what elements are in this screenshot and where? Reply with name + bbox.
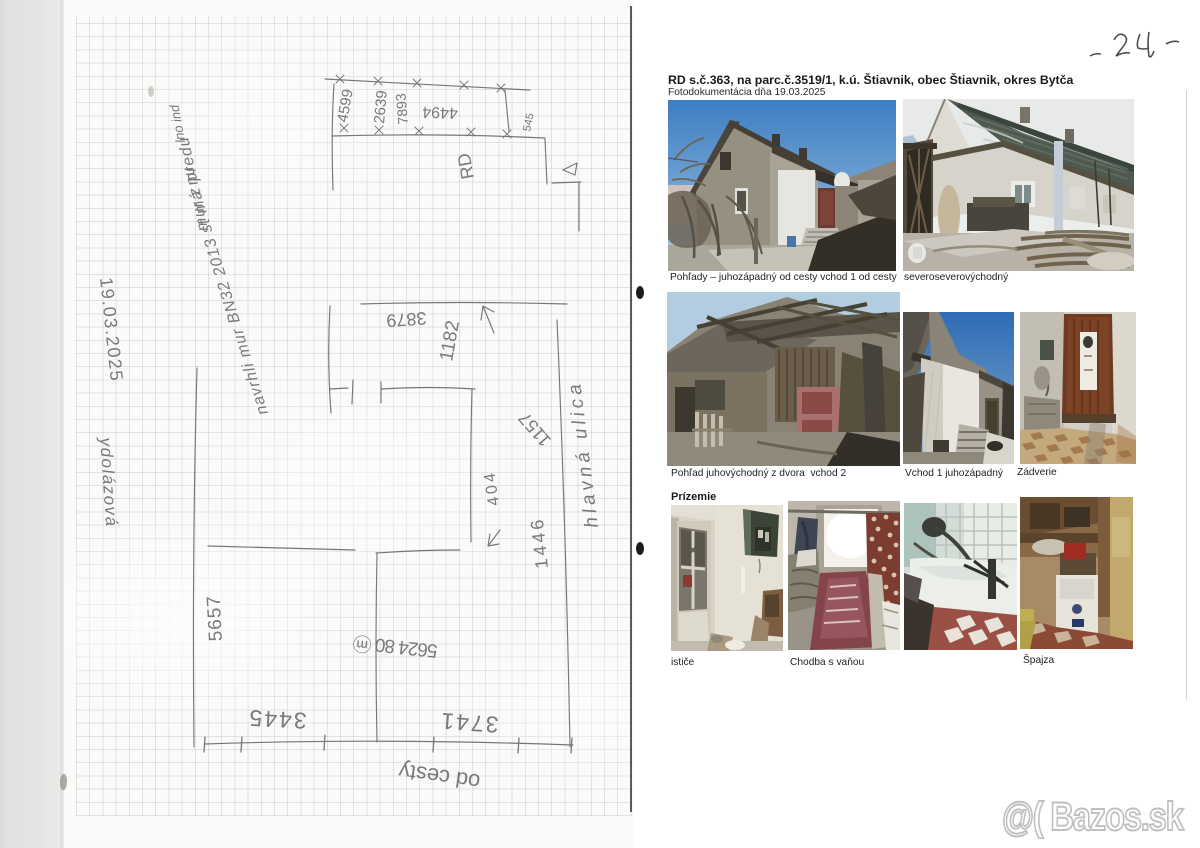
svg-text:4599: 4599 — [334, 88, 357, 124]
svg-text:404: 404 — [481, 469, 503, 507]
svg-text:RD: RD — [454, 152, 478, 181]
svg-text:lno ind: lno ind — [166, 103, 188, 144]
svg-text:3879: 3879 — [386, 308, 427, 331]
svg-text:19.03.2025: 19.03.2025 — [96, 276, 127, 383]
svg-text:1446: 1446 — [527, 516, 552, 570]
svg-text:ydolázová: ydolázová — [96, 436, 121, 528]
svg-text:3445: 3445 — [247, 705, 307, 734]
svg-text:hlavná ulica: hlavná ulica — [564, 379, 603, 529]
svg-text:5624 80 ⓜ: 5624 80 ⓜ — [352, 631, 439, 662]
svg-text:545: 545 — [521, 112, 537, 132]
svg-text:5657: 5657 — [204, 595, 227, 642]
svg-text:od cesty: od cesty — [397, 759, 482, 795]
svg-text:1157: 1157 — [515, 408, 555, 450]
svg-text:2639: 2639 — [371, 90, 391, 125]
svg-text:4494: 4494 — [422, 103, 458, 121]
svg-text:1182: 1182 — [436, 319, 464, 363]
svg-text:7893: 7893 — [392, 92, 411, 125]
svg-text:3741: 3741 — [439, 708, 500, 738]
svg-text:mur z predu: mur z predu — [175, 135, 212, 233]
